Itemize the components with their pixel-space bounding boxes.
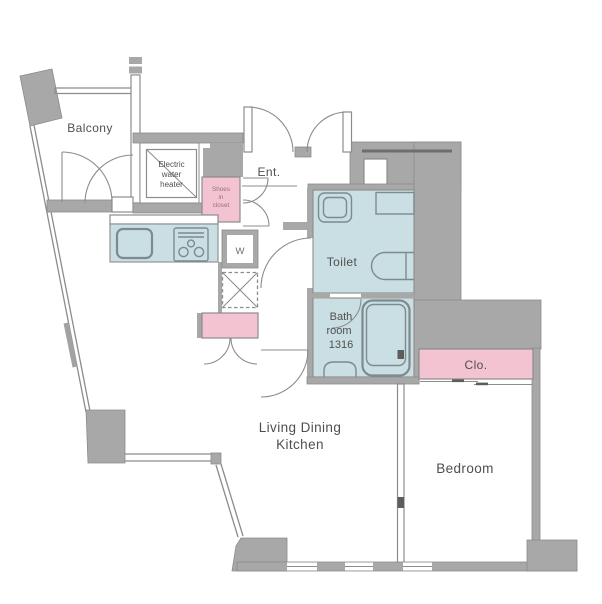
- closet-sliding-door: [420, 380, 532, 386]
- hall-wall-stub: [283, 222, 308, 230]
- south-wall: [237, 540, 577, 571]
- partition-tick: [398, 497, 405, 508]
- east-wall-block: [414, 300, 541, 349]
- bathroom-south-wall: [307, 377, 419, 384]
- svg-text:Electric: Electric: [158, 160, 184, 169]
- pillar-cap: [129, 57, 142, 64]
- svg-text:closet: closet: [213, 202, 230, 209]
- floor-plan-svg: Balcony Electric water heater Shoes in c…: [0, 0, 602, 604]
- toilet-bath-wall: [313, 293, 330, 299]
- window: [403, 563, 432, 571]
- ldk-label: Living Dining Kitchen: [259, 420, 342, 452]
- storage-doors: [204, 338, 257, 364]
- water-heater-label: Electric water heater: [158, 160, 184, 189]
- svg-text:room: room: [326, 325, 351, 337]
- toilet-west-wall: [307, 188, 313, 238]
- toilet-west-wall: [307, 288, 313, 384]
- entrance-door-pier: [295, 147, 311, 157]
- partition-tick: [398, 350, 405, 359]
- window: [287, 563, 317, 571]
- balcony-south-wall: [47, 200, 112, 212]
- west-slanted-window-wall: [30, 125, 90, 412]
- bedroom-label: Bedroom: [436, 461, 494, 476]
- shoe-closet-doors: [243, 178, 269, 226]
- pillar-cap: [129, 67, 142, 74]
- svg-text:Living Dining: Living Dining: [259, 420, 342, 435]
- kitchen-side-wall: [218, 262, 222, 313]
- north-wall: [133, 133, 243, 143]
- bathroom-label: Bath room 1316: [326, 311, 353, 351]
- svg-text:Kitchen: Kitchen: [276, 437, 324, 452]
- corridor-edge-line: [362, 150, 452, 153]
- toilet-room: [313, 190, 414, 293]
- pipe-shaft: [223, 273, 258, 308]
- balcony-label: Balcony: [67, 121, 113, 135]
- toilet-label: Toilet: [327, 255, 358, 269]
- toilet-bath-wall: [361, 293, 414, 299]
- sw-wall-pier: [211, 453, 221, 464]
- toilet-door-arc: [261, 238, 311, 288]
- closet-label: Clo.: [465, 358, 488, 372]
- balcony-end-wall: [20, 69, 62, 126]
- washer-label: W: [236, 246, 245, 257]
- balcony-doors: [62, 152, 133, 203]
- balcony-step: [112, 197, 133, 212]
- svg-text:Bath: Bath: [330, 311, 353, 323]
- sw-wall-block: [86, 410, 125, 463]
- svg-text:heater: heater: [160, 180, 183, 189]
- se-corner-block: [527, 540, 577, 571]
- balcony-railing: [55, 88, 131, 94]
- entrance-side-door: [307, 112, 352, 152]
- entrance-label: Ent.: [258, 165, 281, 179]
- entrance-door: [244, 107, 293, 152]
- floor-plan: Balcony Electric water heater Shoes in c…: [0, 0, 602, 604]
- kitchen-counter-edge: [110, 215, 218, 224]
- svg-text:1316: 1316: [329, 339, 353, 351]
- meter-box: [364, 159, 387, 186]
- sw-slanted-window: [216, 464, 243, 537]
- sw-window: [125, 454, 213, 461]
- partition-wall: [398, 384, 405, 563]
- svg-text:water: water: [161, 170, 182, 179]
- hall-ldk-door: [261, 350, 308, 397]
- wall-above-shoe-closet: [203, 148, 243, 177]
- svg-text:Shoes: Shoes: [212, 186, 230, 193]
- hall-storage: [202, 313, 258, 338]
- window: [345, 563, 373, 571]
- svg-text:in: in: [219, 194, 224, 201]
